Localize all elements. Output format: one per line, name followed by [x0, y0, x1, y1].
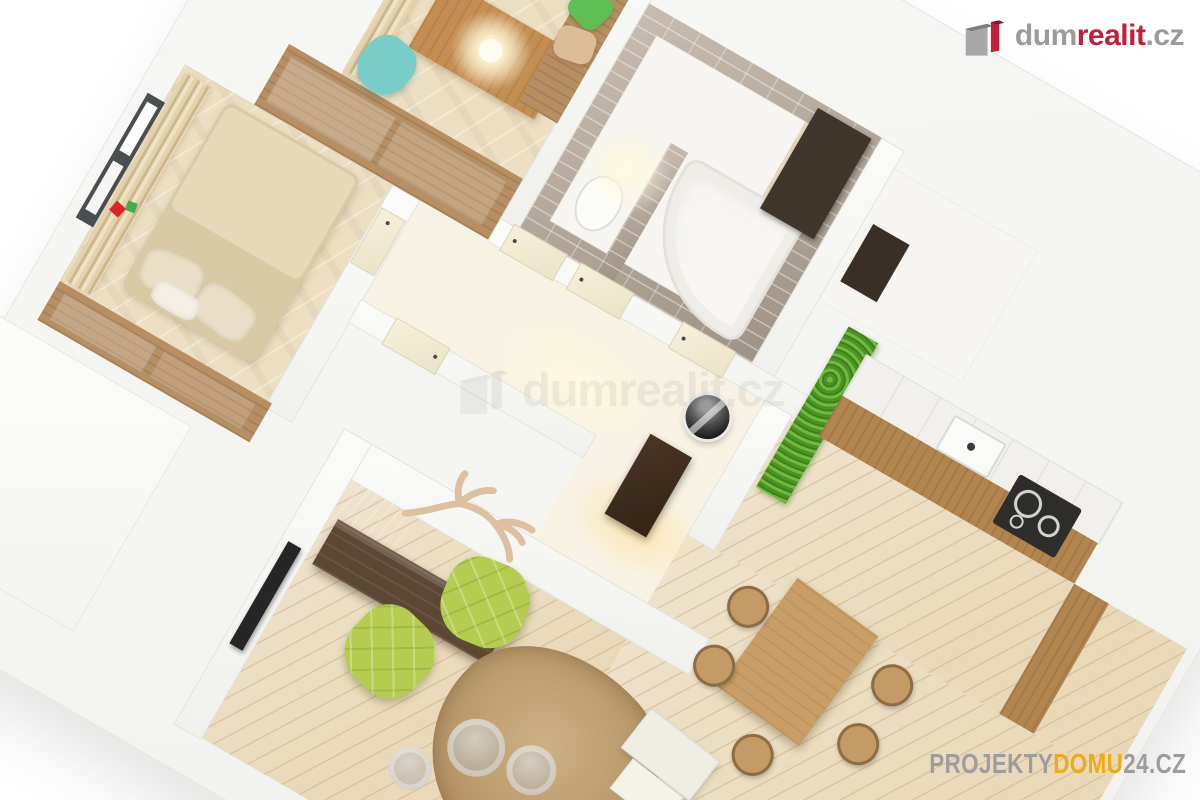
watermark-dumrealit: dumrealit.cz — [452, 360, 784, 418]
logo-text-realit: realit — [1077, 19, 1146, 52]
footer-text-domu: DOMU — [1053, 748, 1123, 779]
screenshot-root: dumrealit.cz dumrealit.cz PROJEKTYDOMU24… — [0, 0, 1200, 800]
dumrealit-cube-icon — [959, 12, 1006, 59]
logo-text-tld: .cz — [1145, 19, 1184, 52]
faucet — [966, 441, 977, 452]
watermark-text: dumrealit.cz — [522, 366, 784, 413]
footer-text-24cz: 24.CZ — [1123, 748, 1186, 779]
logo-text: dumrealit.cz — [1015, 21, 1184, 51]
projektydomu24-badge: PROJEKTYDOMU24.CZ — [929, 750, 1186, 778]
footer-text-projekty: PROJEKTY — [929, 748, 1053, 779]
dumrealit-cube-icon — [452, 360, 510, 418]
logo-text-dum: dum — [1015, 19, 1077, 52]
dumrealit-logo: dumrealit.cz — [959, 12, 1184, 59]
